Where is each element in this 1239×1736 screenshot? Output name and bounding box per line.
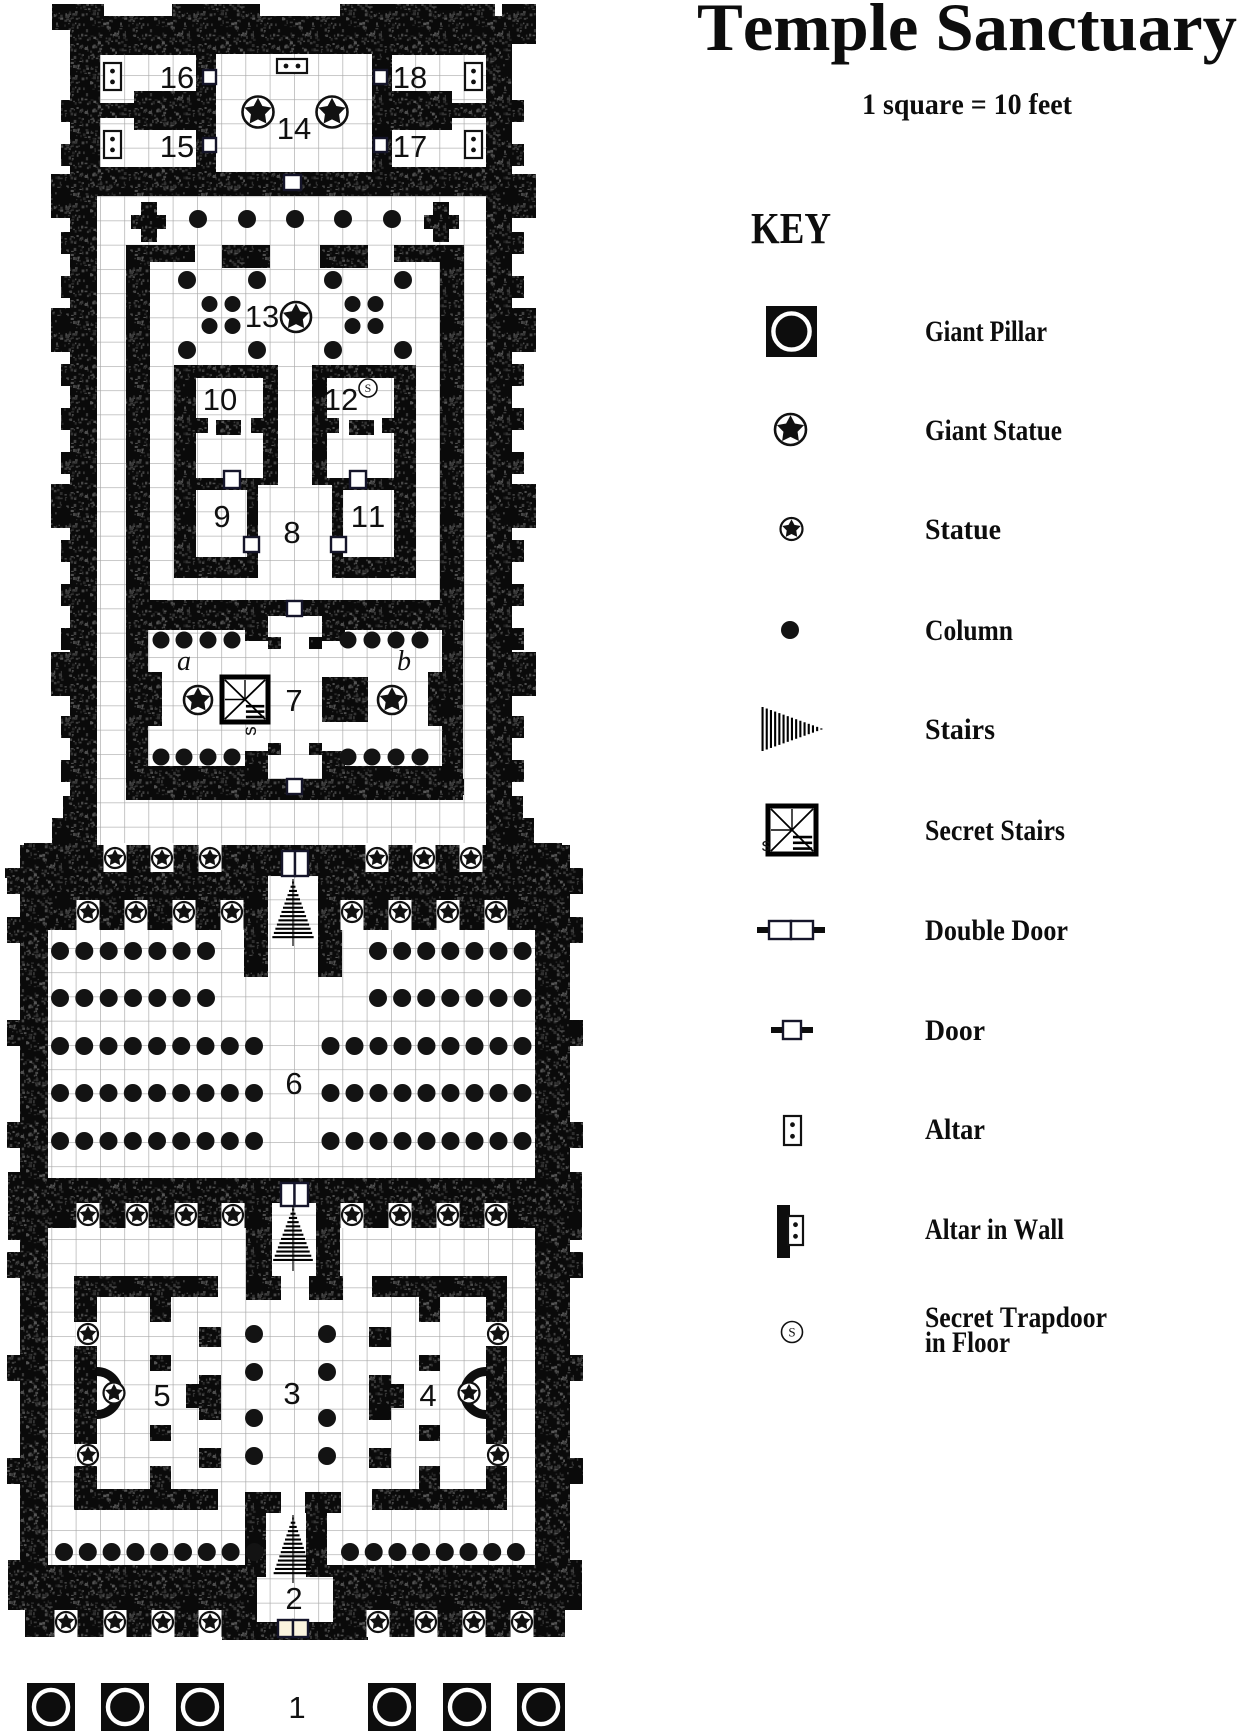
svg-text:Giant Pillar: Giant Pillar: [925, 315, 1047, 348]
svg-text:5: 5: [153, 1378, 170, 1413]
svg-text:12: 12: [324, 382, 358, 417]
svg-text:14: 14: [277, 111, 311, 146]
svg-text:13: 13: [245, 299, 279, 334]
svg-text:Stairs: Stairs: [925, 713, 995, 746]
svg-text:s: s: [762, 835, 771, 855]
svg-text:Altar in Wall: Altar in Wall: [925, 1213, 1064, 1246]
svg-text:s: s: [240, 726, 261, 736]
svg-text:a: a: [177, 646, 191, 677]
svg-text:Secret Stairs: Secret Stairs: [925, 814, 1065, 847]
svg-text:9: 9: [213, 499, 230, 534]
svg-text:Statue: Statue: [925, 513, 1001, 546]
svg-text:2: 2: [285, 1581, 302, 1616]
svg-text:10: 10: [203, 382, 237, 417]
svg-text:15: 15: [160, 129, 194, 164]
svg-text:16: 16: [160, 60, 194, 95]
svg-text:Door: Door: [925, 1014, 985, 1047]
svg-text:Altar: Altar: [925, 1113, 985, 1146]
svg-text:S: S: [788, 1325, 795, 1340]
svg-text:Temple Sanctuary: Temple Sanctuary: [697, 0, 1237, 65]
svg-text:4: 4: [419, 1378, 436, 1413]
svg-text:Giant Statue: Giant Statue: [925, 414, 1062, 447]
svg-text:6: 6: [285, 1066, 302, 1101]
svg-text:17: 17: [393, 129, 427, 164]
svg-text:b: b: [397, 646, 411, 677]
svg-text:S: S: [365, 381, 372, 395]
svg-text:1 square = 10 feet: 1 square = 10 feet: [862, 88, 1072, 121]
svg-text:KEY: KEY: [751, 204, 831, 253]
svg-text:Double Door: Double Door: [925, 914, 1068, 947]
svg-text:8: 8: [283, 515, 300, 550]
svg-text:Column: Column: [925, 614, 1013, 647]
svg-text:1: 1: [288, 1690, 305, 1725]
svg-text:11: 11: [351, 499, 385, 534]
svg-text:7: 7: [285, 683, 302, 718]
svg-text:3: 3: [283, 1376, 300, 1411]
svg-text:in Floor: in Floor: [925, 1326, 1010, 1359]
svg-text:18: 18: [393, 60, 427, 95]
